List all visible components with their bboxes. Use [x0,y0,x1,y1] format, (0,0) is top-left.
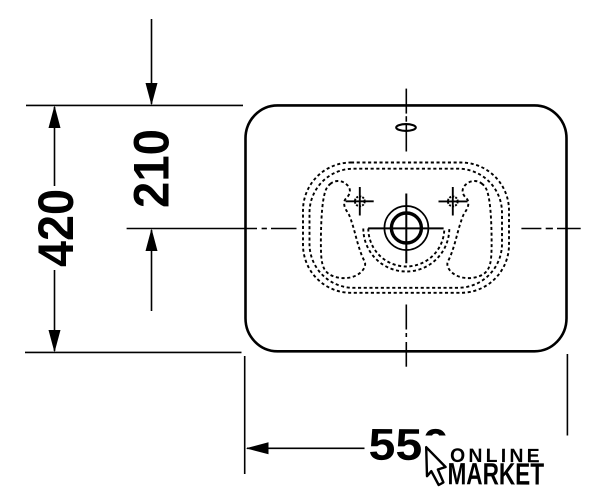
svg-text:210: 210 [124,129,180,208]
svg-text:MARKET: MARKET [447,456,544,491]
svg-text:420: 420 [28,189,84,267]
